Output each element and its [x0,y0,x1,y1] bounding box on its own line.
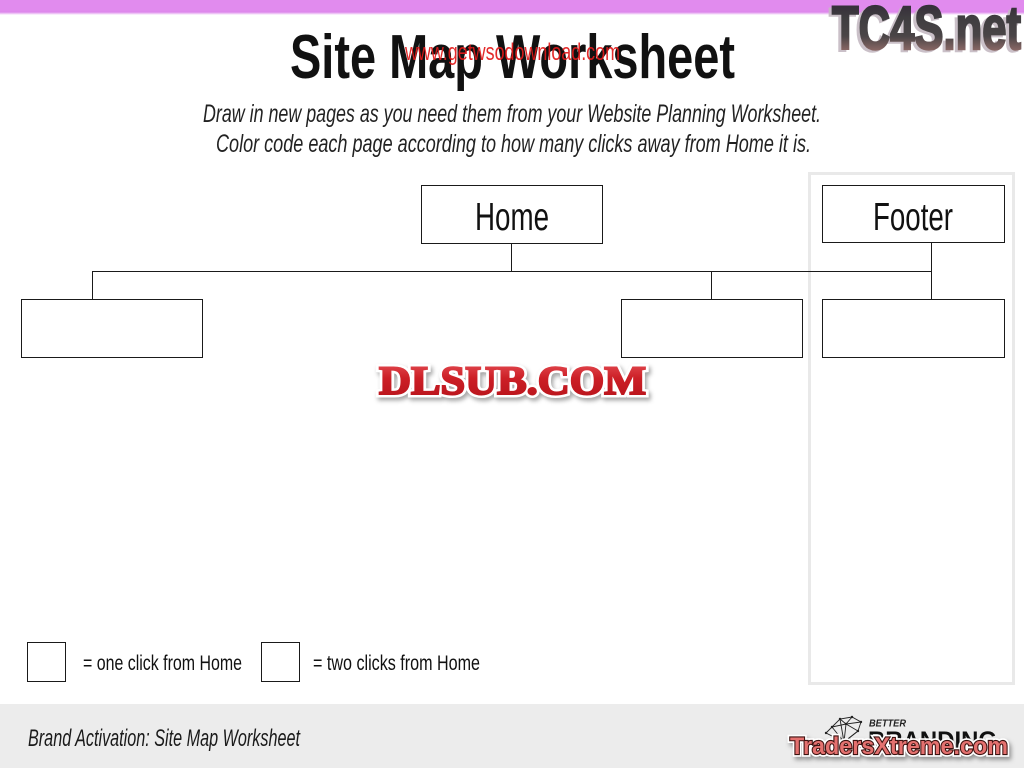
svg-text:www.getwsodownload.com: www.getwsodownload.com [404,39,620,66]
svg-text:Footer: Footer [873,196,953,239]
svg-text:TradersXtreme.com: TradersXtreme.com [790,733,1008,760]
svg-text:Brand Activation: Site Map Wor: Brand Activation: Site Map Worksheet [28,725,301,752]
svg-text:Color code each page according: Color code each page according to how ma… [216,130,811,158]
svg-text:= two clicks from Home: = two clicks from Home [313,652,480,675]
svg-text:DLSUB.COM: DLSUB.COM [379,358,646,403]
svg-text:= one click from Home: = one click from Home [83,652,242,675]
svg-text:Home: Home [475,196,549,239]
svg-text:Draw in new pages as you need: Draw in new pages as you need them from … [203,100,821,128]
svg-text:TC4S.net: TC4S.net [832,0,1021,62]
